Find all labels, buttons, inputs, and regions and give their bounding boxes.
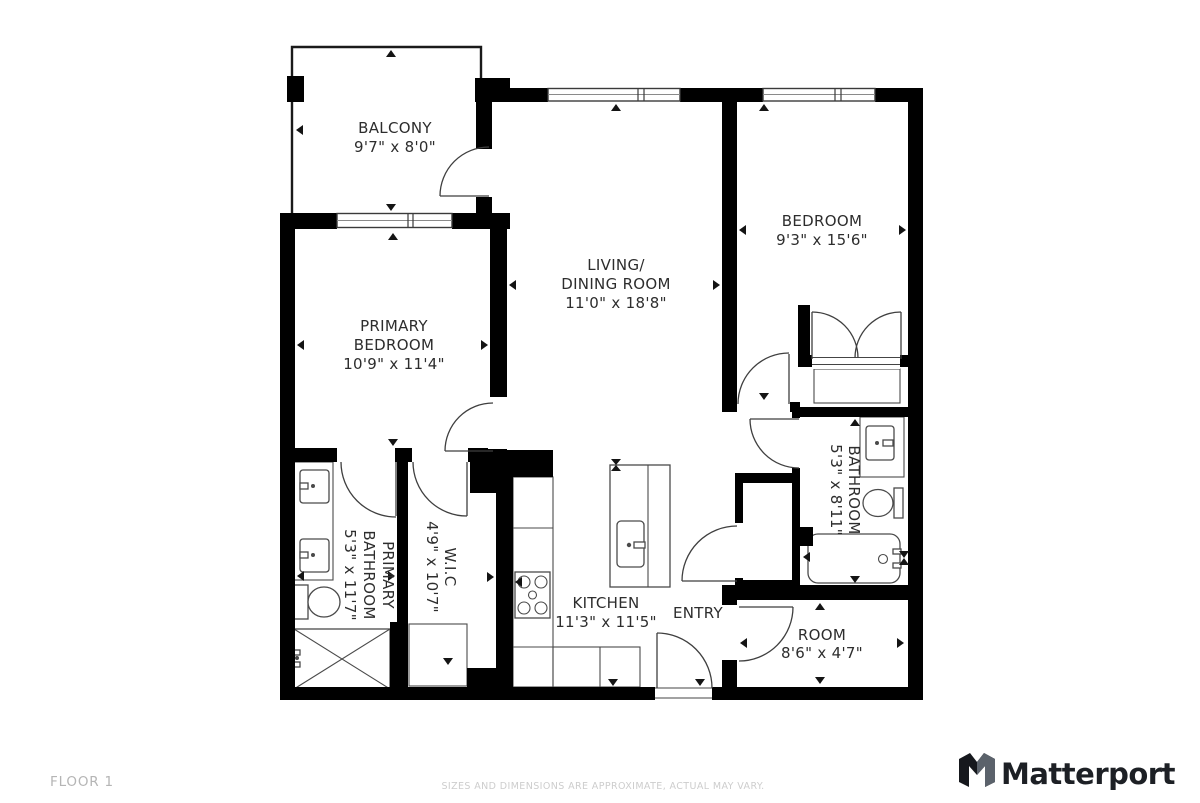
matterport-wordmark: Matterport — [1001, 757, 1176, 791]
floor-plan-page: BALCONY 9'7" x 8'0" PRIMARY BEDROOM 10'9… — [0, 0, 1200, 803]
room-label-kitchen: KITCHEN — [572, 594, 639, 612]
bathroom-toilet — [863, 488, 903, 518]
matterport-logo-icon — [959, 753, 995, 787]
room-dims-primary-bathroom: 5'3" x 11'7" — [341, 529, 359, 621]
room-dims-primary-bedroom: 10'9" x 11'4" — [343, 355, 445, 373]
entry-closet-door — [682, 526, 737, 581]
floor-plan-canvas: BALCONY 9'7" x 8'0" PRIMARY BEDROOM 10'9… — [0, 0, 1200, 803]
disclaimer-text: SIZES AND DIMENSIONS ARE APPROXIMATE, AC… — [441, 781, 764, 792]
room-dims-balcony: 9'7" x 8'0" — [354, 138, 436, 156]
room-label-primary-bedroom-2: BEDROOM — [354, 336, 434, 354]
room-label-entry: ENTRY — [673, 604, 724, 622]
room-dims-wic: 4'9" x 10'7" — [423, 521, 441, 613]
room-label-wic: W.I.C — [441, 547, 459, 586]
bathtub — [808, 534, 901, 583]
room-label-primary-bedroom-1: PRIMARY — [360, 317, 428, 335]
room-dims-living: 11'0" x 18'8" — [565, 294, 667, 312]
wic-door — [413, 462, 467, 516]
wic-nook — [409, 624, 467, 686]
bedroom-window — [763, 89, 875, 102]
room-dims-kitchen: 11'3" x 11'5" — [555, 613, 657, 631]
room-label-living-2: DINING ROOM — [561, 275, 671, 293]
bedroom-closet-shelf — [814, 369, 900, 403]
room-dims-room: 8'6" x 4'7" — [781, 644, 863, 662]
room-label-bedroom: BEDROOM — [782, 212, 862, 230]
room-label-bathroom: BATHROOM — [845, 445, 863, 534]
room-label-living-1: LIVING/ — [587, 256, 645, 274]
footer: FLOOR 1 SIZES AND DIMENSIONS ARE APPROXI… — [50, 753, 1176, 792]
room-label-primary-bathroom-2: BATHROOM — [360, 530, 378, 619]
primary-bath-vanity — [294, 462, 333, 580]
balcony-window — [337, 214, 452, 228]
bedroom-closet-double-doors — [812, 312, 901, 359]
floor-label: FLOOR 1 — [50, 774, 114, 790]
room-label-balcony: BALCONY — [358, 119, 432, 137]
kitchen-island — [610, 465, 670, 587]
bathroom-vanity — [860, 417, 904, 477]
room-dims-bathroom: 5'3" x 8'11" — [827, 444, 845, 536]
room-dims-bedroom: 9'3" x 15'6" — [776, 231, 868, 249]
primary-bath-toilet — [294, 585, 340, 619]
living-window — [548, 89, 680, 102]
room-label-primary-bathroom-1: PRIMARY — [379, 541, 397, 609]
primary-bathroom-door — [341, 462, 396, 517]
windows — [337, 89, 875, 228]
room-label-room: ROOM — [798, 626, 846, 644]
primary-bath-shower — [291, 629, 390, 689]
primary-bedroom-door — [445, 403, 493, 451]
